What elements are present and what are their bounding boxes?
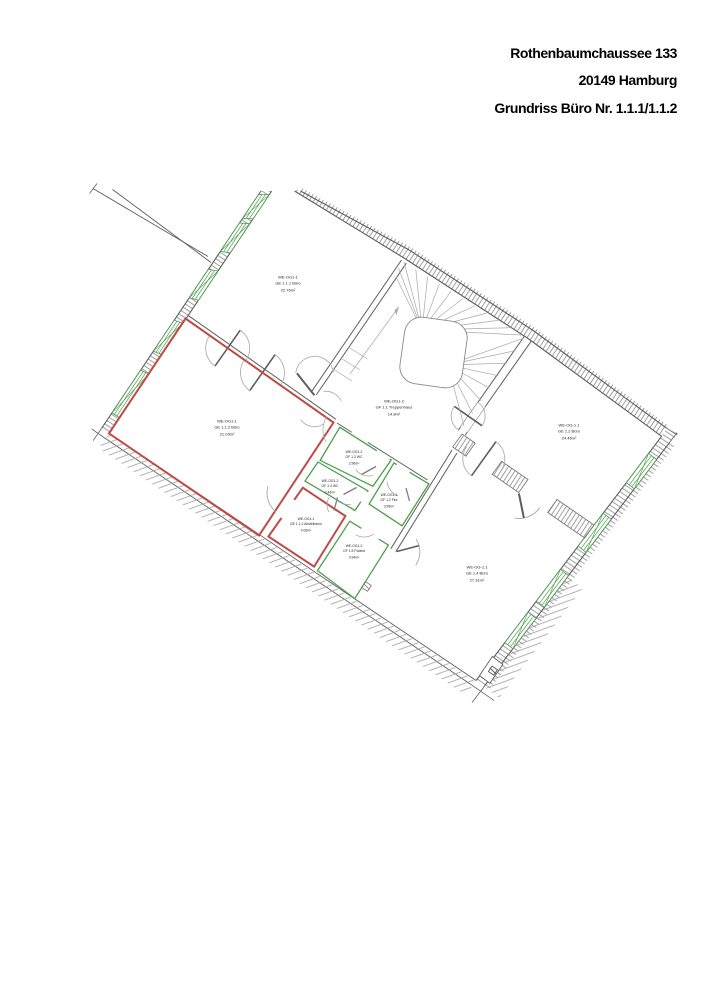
- svg-text:WE-OG1-1GE 1.1.2 Abstellraum4.: WE-OG1-1GE 1.1.2 Abstellraum4.06m²: [290, 517, 322, 532]
- svg-text:WE-OG1-2GF 1.5 Podest3.94m²: WE-OG1-2GF 1.5 Podest3.94m²: [343, 544, 365, 559]
- svg-text:WE-OG1-1GE 1.1.2 Büro21.03m²: WE-OG1-1GE 1.1.2 Büro21.03m²: [214, 419, 240, 437]
- svg-text:WE-OG1-2GF 1.3 WC2.96m²: WE-OG1-2GF 1.3 WC2.96m²: [346, 450, 364, 465]
- svg-text:WE-OG1-1GE 1.1.1 Büro22.76m²: WE-OG1-1GE 1.1.1 Büro22.76m²: [275, 275, 301, 293]
- svg-text:WE-OG1-2GF 1.2 Flur3.95m²: WE-OG1-2GF 1.2 Flur3.95m²: [380, 493, 398, 508]
- svg-text:WE-OG1-2GF 1.4 WC2.46m²: WE-OG1-2GF 1.4 WC2.46m²: [322, 479, 340, 494]
- svg-text:WE-OG-1.1GE 1.4 Büro27.31m²: WE-OG-1.1GE 1.4 Büro27.31m²: [466, 565, 489, 583]
- svg-text:WE-OG1-2GF 1.1 Treppenhaus14.8: WE-OG1-2GF 1.1 Treppenhaus14.8m²: [376, 399, 413, 417]
- svg-text:WE-OG-1.1GE 1.2 Büro24.46m²: WE-OG-1.1GE 1.2 Büro24.46m²: [558, 423, 581, 441]
